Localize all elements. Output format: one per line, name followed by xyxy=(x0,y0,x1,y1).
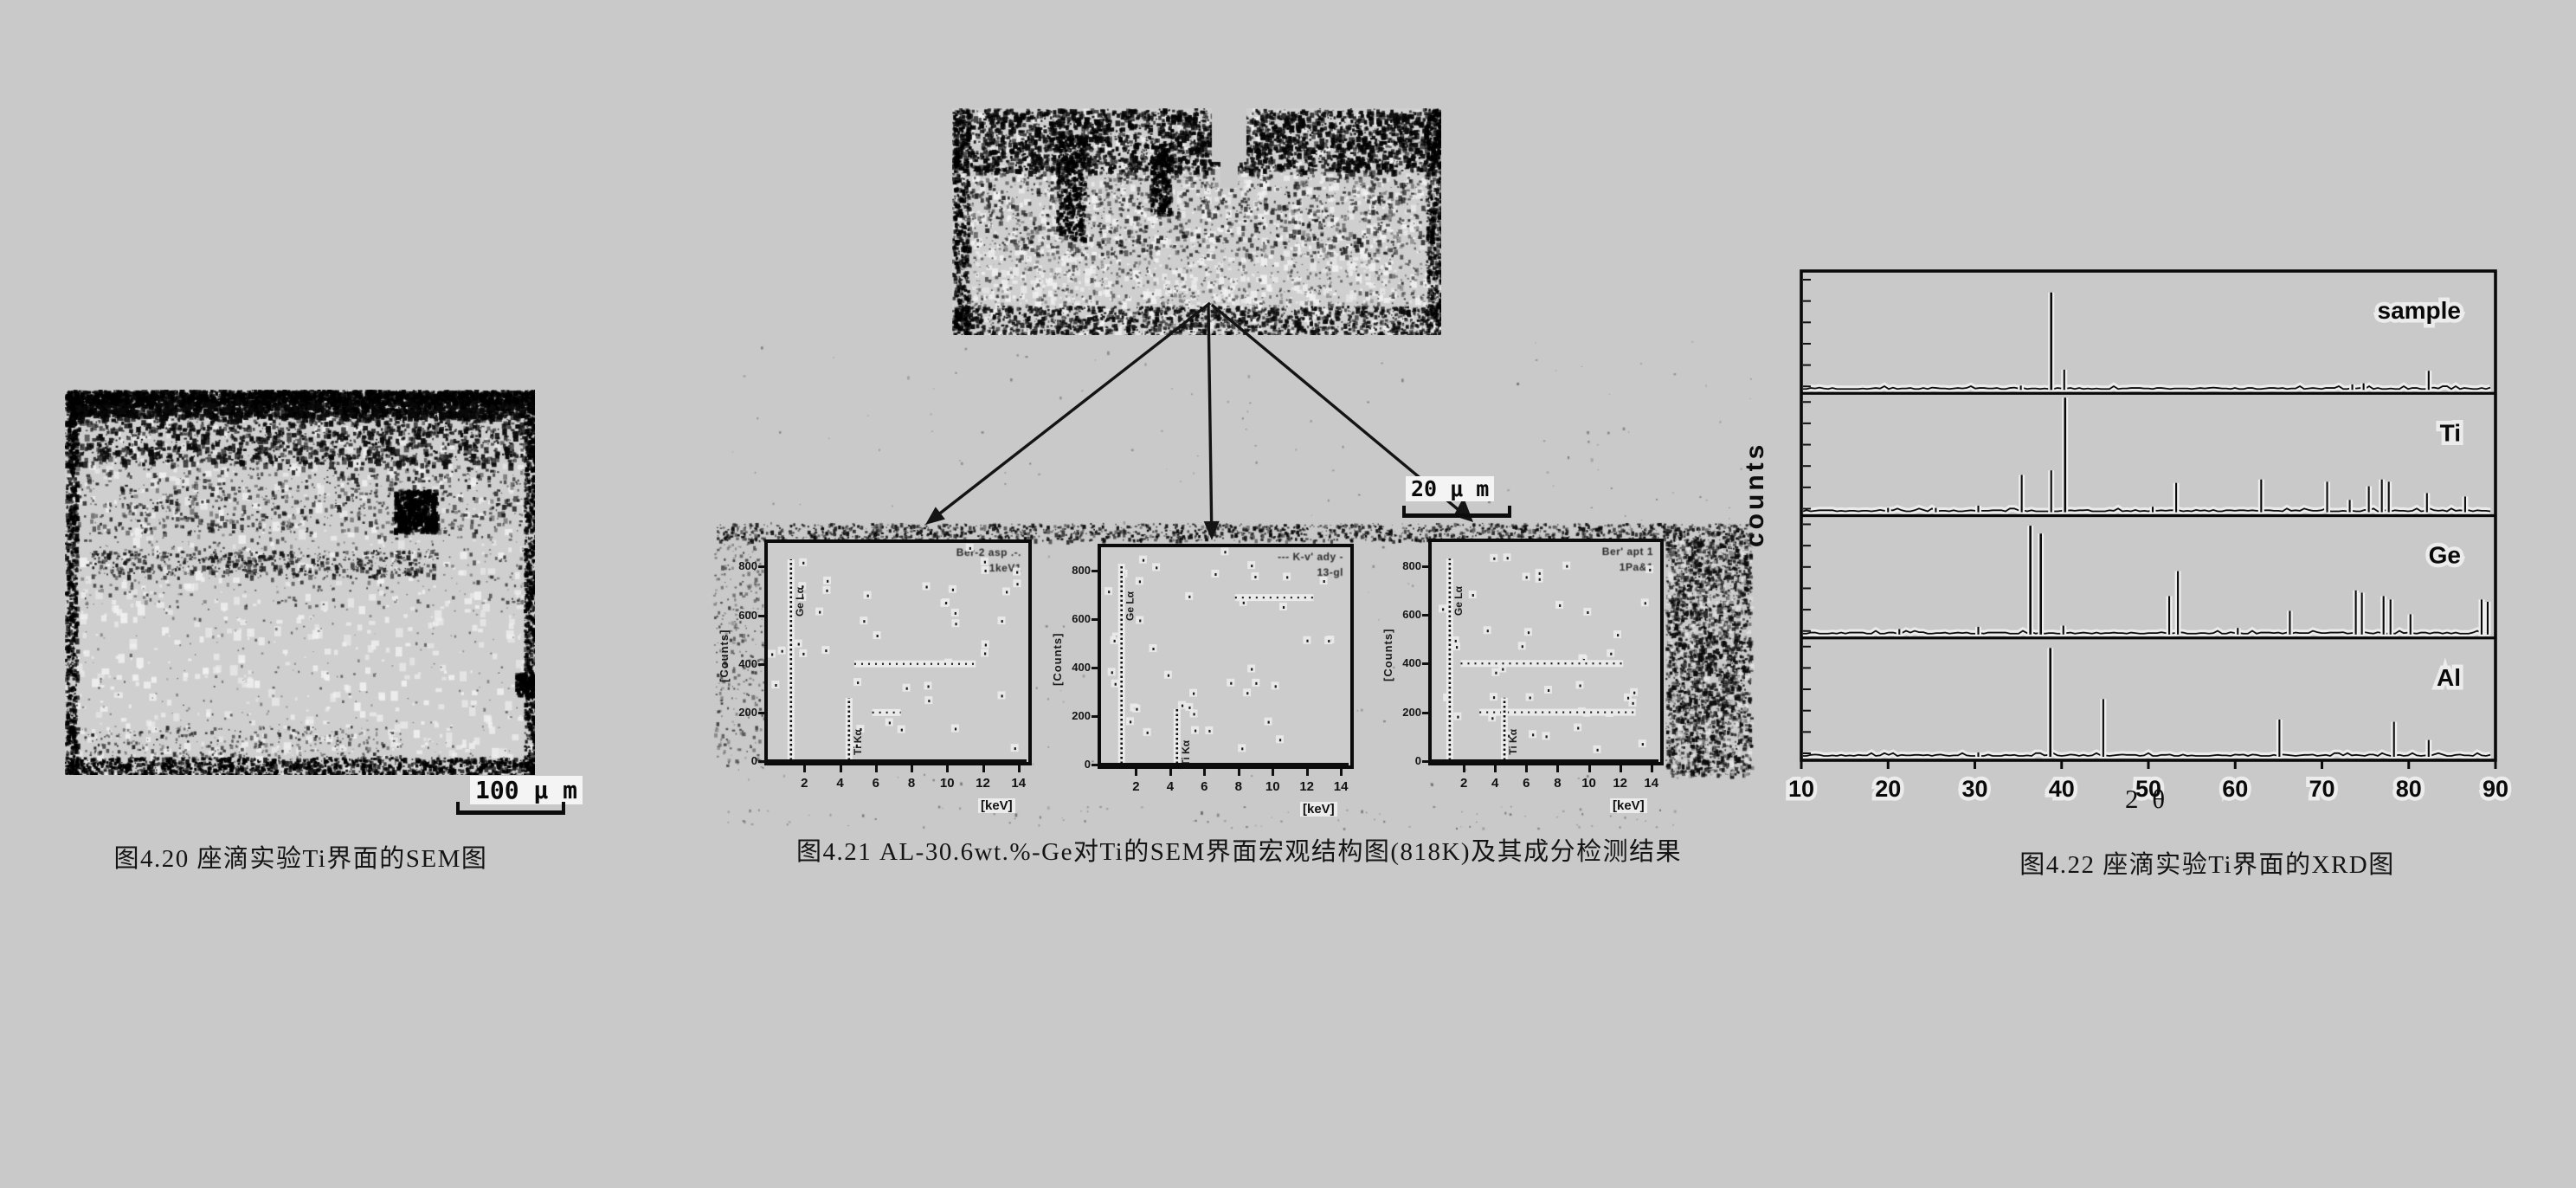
scale-bar-20um xyxy=(1402,506,1511,518)
xrd-xaxis-label: 2 θ xyxy=(2077,784,2216,815)
eds-peak-label: Ti Kα xyxy=(852,729,864,755)
eds-spectrum-plot: Ge LαTi Kα xyxy=(714,526,1049,831)
eds-peak-label: Ge Lα xyxy=(1124,591,1137,621)
xrd-chart: sampleTiGeAl102030405060708090 xyxy=(1740,249,2519,855)
scanned-thesis-figures-page: 100 μ m 图4.20 座滴实验Ti界面的SEM图 20 μ m [Coun… xyxy=(0,0,2576,1188)
figure-4-22-caption: 图4.22 座滴实验Ti界面的XRD图 xyxy=(1861,844,2553,881)
eds-peak-label: Ti Kα xyxy=(1507,728,1519,754)
xrd-xtick-label: 40 xyxy=(2049,776,2075,802)
figure-4-21-caption: 图4.21 AL-30.6wt.%-Ge对Ti的SEM界面宏观结构图(818K)… xyxy=(796,831,1679,868)
eds-spectrum-plot: Ge LαTi Kα xyxy=(1378,525,1681,831)
xrd-xtick-label: 30 xyxy=(1961,776,1987,802)
xrd-series-label: Ti xyxy=(2440,419,2461,446)
xrd-xtick-label: 60 xyxy=(2222,776,2248,802)
xrd-xtick-label: 90 xyxy=(2483,776,2508,802)
xrd-series-label: Al xyxy=(2437,664,2461,691)
eds-peak-label: Ge Lα xyxy=(794,586,806,617)
eds-peak-label: Ti Kα xyxy=(1180,739,1192,765)
xrd-xtick-label: 70 xyxy=(2309,776,2334,802)
xrd-yaxis-label: counts xyxy=(1741,443,1770,547)
xrd-series-label: sample xyxy=(2378,297,2462,324)
eds-spectrum-panel-3: [Counts] Ber' apt 1 1Pa&1 [keV] 02004006… xyxy=(1378,525,1681,831)
xrd-xtick-label: 80 xyxy=(2396,776,2422,802)
xrd-xtick-label: 10 xyxy=(1788,776,1814,802)
eds-spectrum-panel-1: [Counts] Ber-2 asp .-. 1keV1 [keV] 02004… xyxy=(714,526,1049,831)
xrd-series-label: Ge xyxy=(2429,542,2461,569)
scale-bar-label-20um: 20 μ m xyxy=(1406,476,1494,501)
eds-peak-label: Ge Lα xyxy=(1452,585,1465,616)
eds-spectrum-panel-2: [Counts] --- K-v' ady - 13-gl [keV] 0200… xyxy=(1047,530,1371,835)
eds-spectrum-plot: Ge LαTi Kα xyxy=(1047,530,1371,835)
xrd-xtick-label: 20 xyxy=(1875,776,1901,802)
